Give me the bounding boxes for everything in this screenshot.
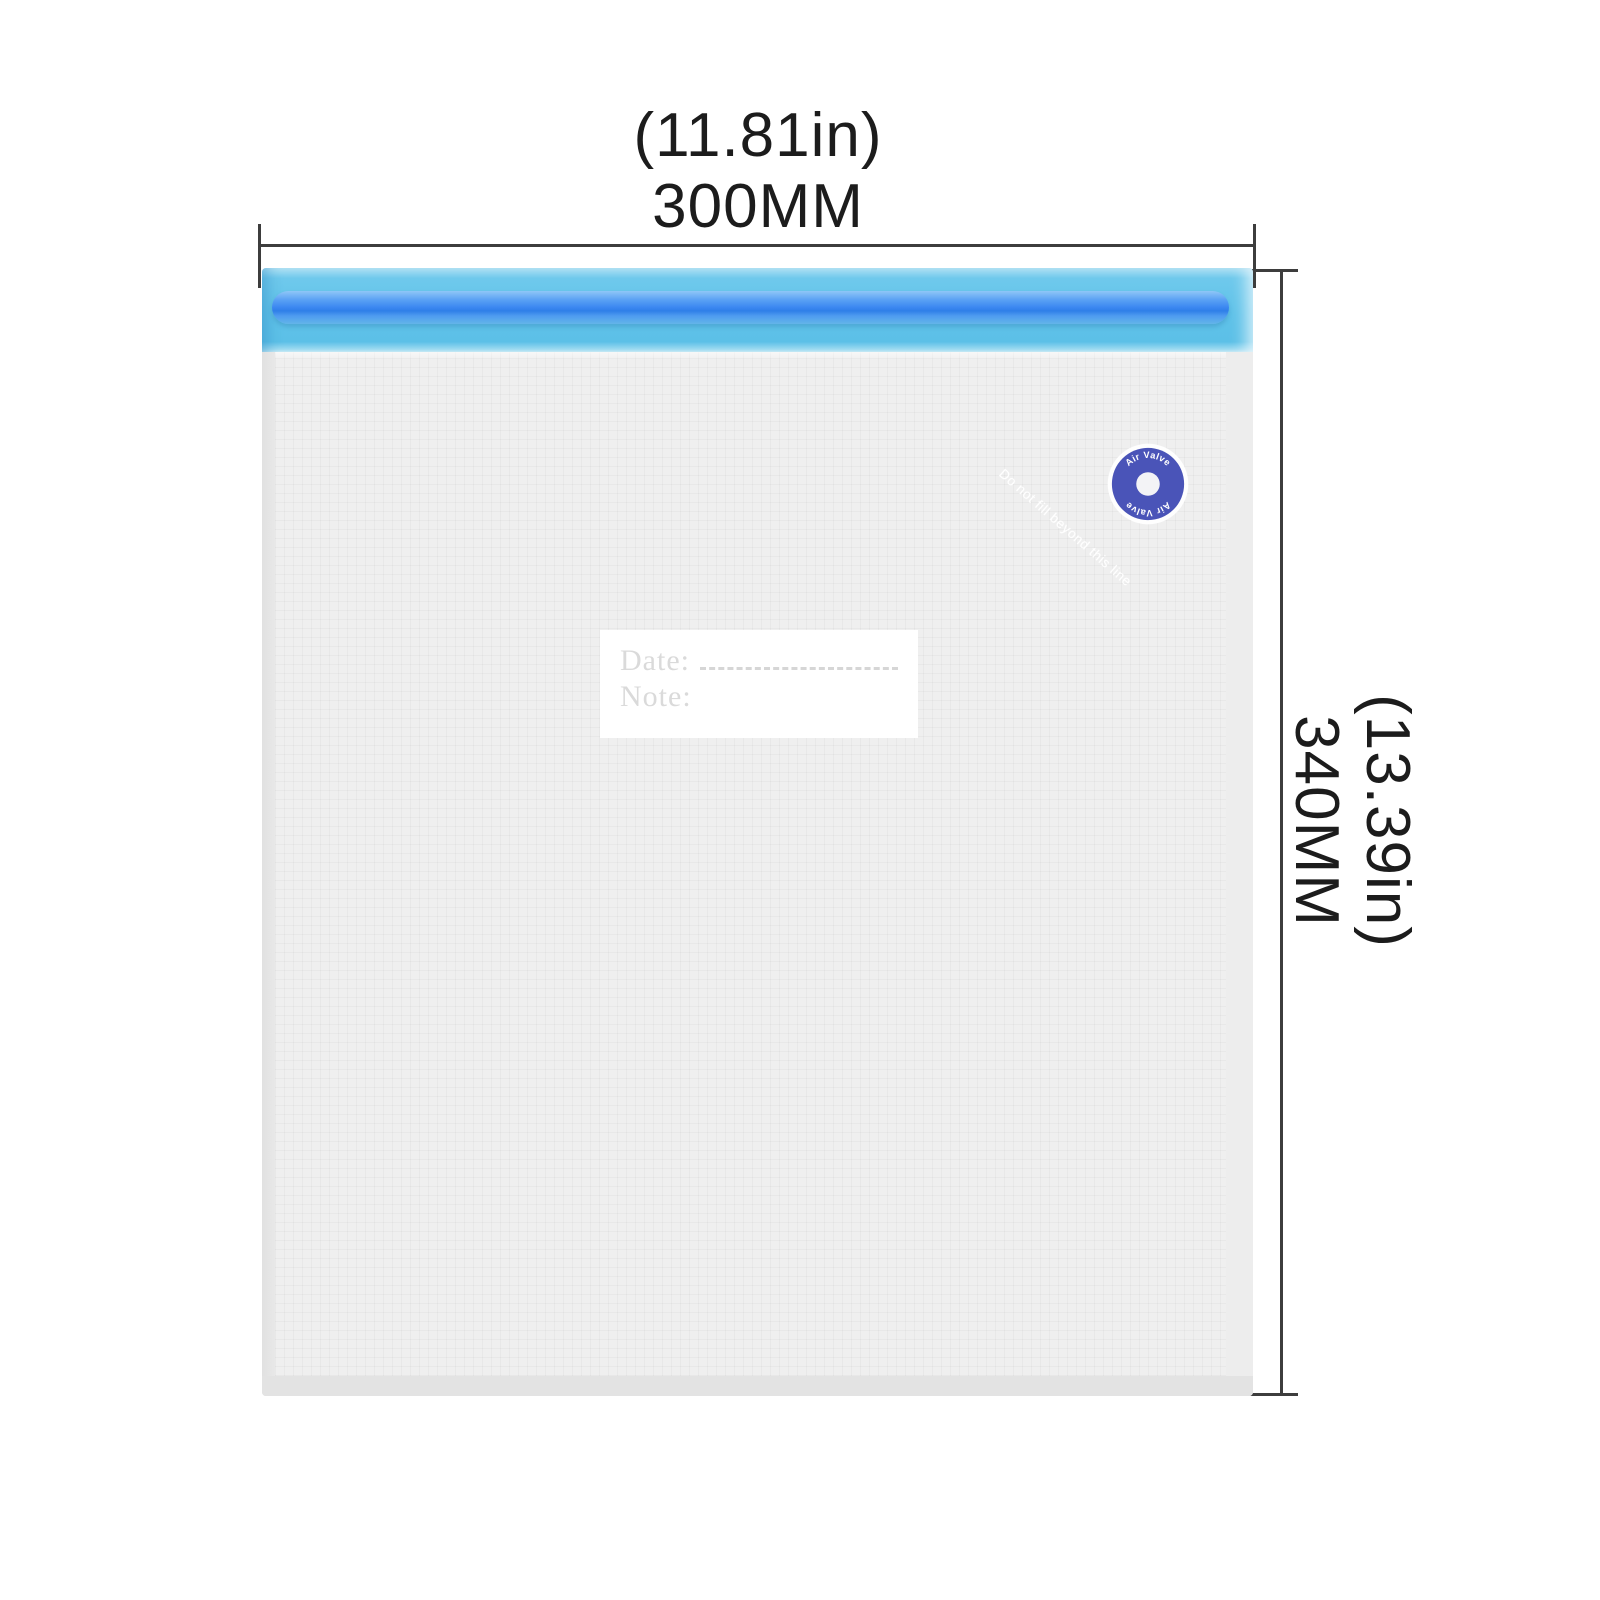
bag-textured-panel: [275, 352, 1226, 1376]
date-label: Date:: [620, 644, 690, 678]
air-valve-icon: Air Valve Air Valve: [1106, 442, 1190, 526]
bag-seal-edge-left: [262, 352, 275, 1396]
bag-body: [262, 352, 1253, 1396]
zipper-seal-band: [262, 268, 1253, 352]
vacuum-seal-bag: Do not fill beyond this line Air Valve A…: [262, 268, 1253, 1396]
width-inches-text: (11.81in): [508, 100, 1008, 171]
bag-seal-edge-right: [1226, 352, 1253, 1396]
date-dashed-line: [700, 647, 898, 670]
height-dimension-label: (13.39in) 340MM: [1277, 571, 1423, 1071]
note-label: Note:: [620, 680, 692, 714]
width-dimension-tick-left: [258, 224, 261, 288]
width-mm-text: 300MM: [508, 171, 1008, 242]
width-dimension-tick-right: [1253, 224, 1256, 288]
height-inches-text: (13.39in): [1352, 571, 1423, 1071]
zipper-slider-rail: [272, 291, 1229, 324]
height-dimension-line: [1280, 269, 1283, 1396]
width-dimension-label: (11.81in) 300MM: [508, 100, 1008, 242]
date-note-label: Date: Note:: [600, 630, 918, 738]
width-dimension-line: [258, 244, 1256, 247]
bag-seal-edge-bottom: [262, 1376, 1253, 1396]
product-dimension-diagram: (11.81in) 300MM (13.39in) 340MM Do not f…: [0, 0, 1600, 1600]
height-mm-text: 340MM: [1281, 571, 1352, 1071]
